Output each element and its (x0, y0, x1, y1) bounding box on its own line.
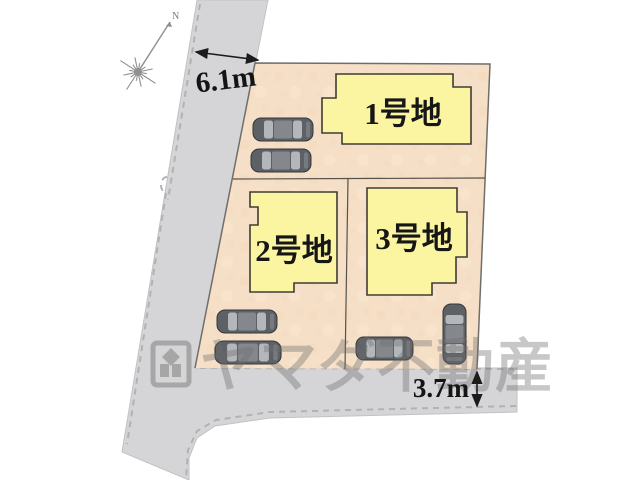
site-plan-canvas: 1号地 2号地 3号地 ヤマダ不動産 6.1m 3.7m N (0, 0, 620, 480)
car (251, 149, 311, 172)
site-plan-diagram: 1号地 2号地 3号地 ヤマダ不動産 6.1m 3.7m N (0, 0, 620, 480)
car (217, 310, 277, 333)
plot-2-label: 2号地 (255, 233, 333, 268)
plot-3-label: 3号地 (375, 221, 453, 256)
car (253, 118, 313, 141)
dimension-road-bottom-label: 3.7m (413, 373, 470, 403)
dimension-road-bottom: 3.7m (413, 372, 477, 406)
plot-1-label: 1号地 (364, 96, 442, 131)
watermark-text: ヤマダ不動産 (200, 332, 554, 400)
compass-north-label: N (172, 11, 179, 22)
